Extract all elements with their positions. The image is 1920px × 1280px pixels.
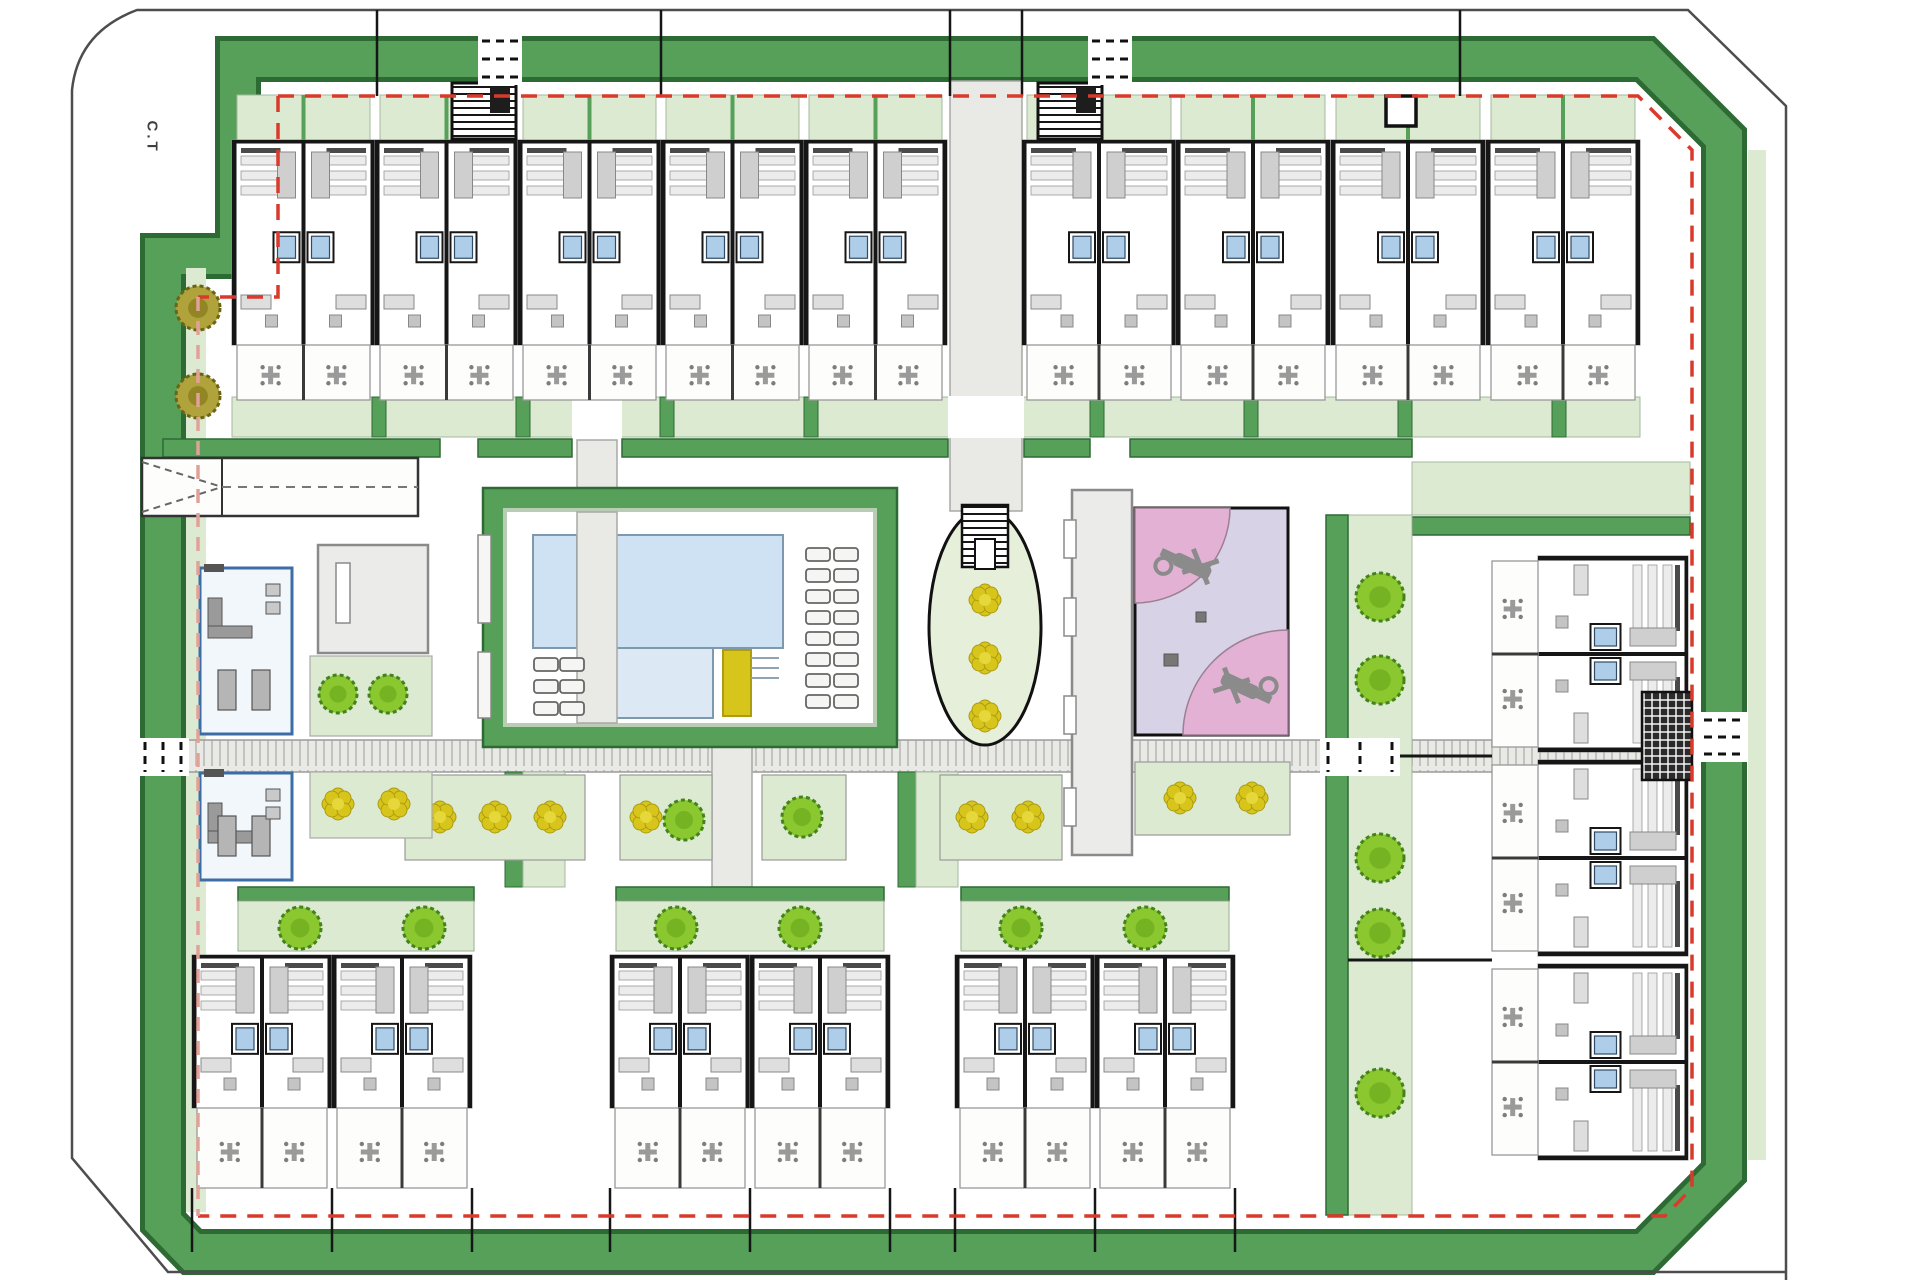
bed-headboard bbox=[1586, 148, 1631, 153]
sofa bbox=[1340, 295, 1370, 309]
door-slot bbox=[1064, 788, 1076, 826]
unit-wall bbox=[445, 140, 449, 345]
bathroom-tile bbox=[828, 1028, 846, 1050]
side-table bbox=[330, 315, 342, 327]
planter-flower bbox=[322, 788, 354, 820]
unit-wall bbox=[661, 140, 666, 345]
bed bbox=[759, 986, 797, 995]
closet bbox=[376, 967, 394, 1013]
side-table bbox=[409, 315, 421, 327]
unit-wall bbox=[1172, 140, 1177, 345]
tree bbox=[782, 797, 822, 837]
side-table bbox=[266, 315, 278, 327]
sun-lounger bbox=[534, 702, 558, 715]
closet bbox=[828, 967, 846, 1013]
unit-wall bbox=[1538, 964, 1688, 969]
pool-enclosure bbox=[478, 488, 897, 747]
closet bbox=[884, 152, 902, 198]
planter-strip bbox=[961, 887, 1229, 951]
bed bbox=[1104, 1001, 1142, 1010]
tree bbox=[1356, 656, 1404, 704]
sofa bbox=[813, 295, 843, 309]
terrace-table bbox=[326, 365, 346, 385]
sun-lounger bbox=[834, 695, 858, 708]
sofa bbox=[1104, 1058, 1134, 1072]
unit-wall bbox=[1331, 140, 1336, 345]
bin-room-dark bbox=[490, 87, 510, 113]
side-table bbox=[473, 315, 485, 327]
service-building bbox=[318, 545, 428, 653]
bed bbox=[1122, 156, 1167, 165]
bed-headboard bbox=[1122, 148, 1167, 153]
garden-separator bbox=[1552, 397, 1566, 437]
side-table bbox=[288, 1078, 300, 1090]
plaza-green-band bbox=[478, 439, 572, 457]
club-desk bbox=[208, 626, 252, 638]
bed bbox=[1663, 881, 1672, 947]
bed bbox=[1586, 186, 1631, 195]
bathroom-tile bbox=[850, 236, 868, 258]
terrace-table bbox=[284, 1142, 304, 1162]
unit-wall bbox=[1091, 955, 1096, 1108]
terrace-divider bbox=[588, 345, 591, 400]
bed-headboard bbox=[1675, 881, 1680, 947]
side-table bbox=[1525, 315, 1537, 327]
unit-wall bbox=[1538, 556, 1688, 561]
tree bbox=[369, 675, 407, 713]
bed bbox=[1633, 973, 1642, 1039]
patio-divider bbox=[445, 95, 449, 140]
closet bbox=[1073, 152, 1091, 198]
bathroom-tile bbox=[1416, 236, 1434, 258]
unit-wall bbox=[375, 140, 380, 345]
bed bbox=[527, 171, 567, 180]
sun-lounger bbox=[834, 611, 858, 624]
bed-headboard bbox=[619, 963, 657, 968]
closet bbox=[707, 152, 725, 198]
bathroom-tile bbox=[410, 1028, 428, 1050]
sofa bbox=[759, 1058, 789, 1072]
sofa bbox=[1601, 295, 1631, 309]
patio-divider bbox=[302, 95, 306, 140]
side-table bbox=[1434, 315, 1446, 327]
closet bbox=[564, 152, 582, 198]
parking-ramp bbox=[142, 458, 418, 516]
bathroom-tile bbox=[1595, 1070, 1617, 1088]
garden-separator bbox=[1090, 397, 1104, 437]
terrace-divider bbox=[261, 1108, 264, 1188]
bed bbox=[201, 1001, 239, 1010]
bed bbox=[964, 971, 1002, 980]
sofa bbox=[1574, 973, 1588, 1003]
sun-lounger bbox=[834, 590, 858, 603]
sofa bbox=[527, 295, 557, 309]
bed bbox=[619, 986, 657, 995]
terrace-table bbox=[1517, 365, 1537, 385]
planter-band bbox=[961, 887, 1229, 901]
side-table bbox=[987, 1078, 999, 1090]
bed bbox=[670, 171, 710, 180]
bathroom-tile bbox=[999, 1028, 1017, 1050]
apartment-unit-pair bbox=[610, 955, 750, 1188]
unit-wall bbox=[657, 140, 662, 345]
terrace-divider bbox=[1098, 345, 1101, 400]
unit-wall bbox=[750, 955, 755, 1108]
bed bbox=[327, 156, 367, 165]
bed-headboard bbox=[1675, 973, 1680, 1039]
closet bbox=[278, 152, 296, 198]
side-table bbox=[1556, 680, 1568, 692]
terrace-table bbox=[1503, 893, 1523, 913]
terrace-divider bbox=[1562, 345, 1565, 400]
bed bbox=[425, 971, 463, 980]
patio-divider bbox=[731, 95, 735, 140]
unit-wall bbox=[514, 140, 519, 345]
sofa bbox=[1574, 713, 1588, 743]
terrace-divider bbox=[401, 1108, 404, 1188]
unit-wall bbox=[1561, 140, 1565, 345]
unit-wall bbox=[746, 955, 751, 1108]
unit-wall bbox=[192, 955, 197, 1108]
bathroom-tile bbox=[1073, 236, 1091, 258]
bed-headboard bbox=[613, 148, 653, 153]
side-table bbox=[1191, 1078, 1203, 1090]
unit-wall bbox=[1176, 140, 1181, 345]
bed bbox=[1122, 171, 1167, 180]
closet bbox=[1630, 832, 1676, 850]
door-slot bbox=[1064, 598, 1076, 636]
bed bbox=[527, 156, 567, 165]
bed bbox=[1633, 881, 1642, 947]
bathroom-tile bbox=[1595, 1036, 1617, 1054]
unit-wall bbox=[1538, 652, 1688, 656]
flower-strip bbox=[940, 775, 1062, 860]
green-band-lining bbox=[1748, 150, 1766, 1160]
bed bbox=[1276, 156, 1321, 165]
bottom-apartment-cluster bbox=[192, 955, 472, 1188]
bathroom-tile bbox=[376, 1028, 394, 1050]
bed bbox=[470, 171, 510, 180]
terrace-table bbox=[1053, 365, 1073, 385]
side-table bbox=[1061, 315, 1073, 327]
terrace-table bbox=[1362, 365, 1382, 385]
closet bbox=[421, 152, 439, 198]
sofa bbox=[1031, 295, 1061, 309]
terrace-table bbox=[220, 1142, 240, 1162]
closet bbox=[1416, 152, 1434, 198]
patio-divider bbox=[1251, 95, 1255, 140]
tree bbox=[319, 675, 357, 713]
sun-lounger bbox=[834, 632, 858, 645]
tree bbox=[664, 800, 704, 840]
bathroom-tile bbox=[688, 1028, 706, 1050]
bed bbox=[1276, 186, 1321, 195]
apartment-unit-pair bbox=[518, 95, 661, 400]
sofa bbox=[1574, 1121, 1588, 1151]
sofa bbox=[1196, 1058, 1226, 1072]
garden-island bbox=[929, 505, 1041, 745]
service-building bbox=[1072, 490, 1132, 855]
sun-lounger bbox=[806, 632, 830, 645]
unit-wall bbox=[1251, 140, 1255, 345]
bed bbox=[341, 986, 379, 995]
terrace-table bbox=[1433, 365, 1453, 385]
sofa bbox=[964, 1058, 994, 1072]
bed bbox=[1663, 973, 1672, 1039]
top-apartment-block bbox=[1022, 95, 1640, 400]
unit-wall bbox=[800, 140, 805, 345]
unit-wall bbox=[328, 955, 333, 1108]
tree bbox=[1356, 834, 1404, 882]
plaza-green-band bbox=[1024, 439, 1090, 457]
closet bbox=[270, 967, 288, 1013]
bed bbox=[843, 986, 881, 995]
club-unit bbox=[266, 602, 280, 614]
bed-headboard bbox=[1048, 963, 1086, 968]
side-table bbox=[695, 315, 707, 327]
bed bbox=[1188, 971, 1226, 980]
unit-wall bbox=[818, 955, 822, 1108]
planter-flower bbox=[969, 642, 1001, 674]
apartment-unit-pair bbox=[804, 95, 947, 400]
closet bbox=[1630, 1070, 1676, 1088]
tree bbox=[1356, 909, 1404, 957]
terrace-divider bbox=[1492, 1061, 1538, 1064]
bathroom-tile bbox=[741, 236, 759, 258]
bed-headboard bbox=[703, 963, 741, 968]
play-equipment-small bbox=[1164, 654, 1178, 666]
bed bbox=[964, 1001, 1002, 1010]
terrace-table bbox=[832, 365, 852, 385]
bed-headboard bbox=[1276, 148, 1321, 153]
unit-wall bbox=[400, 955, 404, 1108]
bed bbox=[759, 1001, 797, 1010]
closet bbox=[1537, 152, 1555, 198]
tree-strip-band bbox=[1326, 515, 1348, 1215]
terrace-table bbox=[1187, 1142, 1207, 1162]
unit-wall bbox=[1097, 140, 1101, 345]
bed bbox=[756, 156, 796, 165]
bed bbox=[1188, 986, 1226, 995]
bed bbox=[384, 186, 424, 195]
bathroom-tile bbox=[236, 1028, 254, 1050]
sofa bbox=[851, 1058, 881, 1072]
terrace-divider bbox=[445, 345, 448, 400]
terrace-divider bbox=[302, 345, 305, 400]
side-table bbox=[759, 315, 771, 327]
terrace-divider bbox=[1024, 1108, 1027, 1188]
bin-room-dark bbox=[1076, 87, 1096, 113]
unit-wall bbox=[886, 955, 891, 1108]
sun-lounger bbox=[534, 680, 558, 693]
apartment-unit-pair bbox=[375, 95, 518, 400]
planter-flower bbox=[1164, 782, 1196, 814]
side-table bbox=[1556, 884, 1568, 896]
bed bbox=[384, 171, 424, 180]
tree bbox=[655, 907, 697, 949]
sofa bbox=[201, 1058, 231, 1072]
garden-separator bbox=[1398, 397, 1412, 437]
bin-store-room bbox=[1038, 83, 1102, 139]
tree bbox=[1000, 907, 1042, 949]
closet bbox=[688, 967, 706, 1013]
bed bbox=[1586, 156, 1631, 165]
right-cluster-band bbox=[1412, 517, 1690, 535]
bathroom-tile bbox=[707, 236, 725, 258]
sofa bbox=[1185, 295, 1215, 309]
unit-wall bbox=[955, 955, 960, 1108]
garden-separator bbox=[804, 397, 818, 437]
side-table bbox=[1556, 820, 1568, 832]
bed bbox=[1495, 186, 1540, 195]
pool-steps bbox=[723, 650, 751, 716]
side-table bbox=[706, 1078, 718, 1090]
bed bbox=[1648, 973, 1657, 1039]
central-corridor-walkway bbox=[950, 81, 1022, 511]
closet bbox=[1630, 866, 1676, 884]
terrace-table bbox=[778, 1142, 798, 1162]
bathroom-tile bbox=[421, 236, 439, 258]
bed-headboard bbox=[1185, 148, 1230, 153]
closet bbox=[236, 967, 254, 1013]
closet bbox=[1173, 967, 1191, 1013]
bed-headboard bbox=[756, 148, 796, 153]
ct-transformer-label: C.T bbox=[144, 121, 161, 141]
unit-wall bbox=[518, 140, 523, 345]
apartment-unit-pair bbox=[661, 95, 804, 400]
terrace-table bbox=[702, 1142, 722, 1162]
door-slot bbox=[1064, 696, 1076, 734]
sofa bbox=[433, 1058, 463, 1072]
unit-wall bbox=[302, 140, 306, 345]
sofa bbox=[1574, 565, 1588, 595]
bed bbox=[899, 171, 939, 180]
bathroom-tile bbox=[270, 1028, 288, 1050]
bed bbox=[1431, 156, 1476, 165]
terrace-table bbox=[469, 365, 489, 385]
side-table bbox=[902, 315, 914, 327]
sofa bbox=[1056, 1058, 1086, 1072]
terrace-table bbox=[689, 365, 709, 385]
garden-terrace bbox=[310, 772, 432, 838]
unit-wall bbox=[1538, 856, 1688, 860]
terrace-table bbox=[1503, 599, 1523, 619]
sun-lounger bbox=[834, 674, 858, 687]
closet bbox=[1630, 662, 1676, 680]
bed bbox=[1185, 186, 1230, 195]
bathroom-tile bbox=[1261, 236, 1279, 258]
sofa bbox=[908, 295, 938, 309]
apartment-unit-pair bbox=[1331, 95, 1485, 400]
sofa bbox=[1574, 917, 1588, 947]
flower-strip bbox=[620, 775, 712, 860]
side-table bbox=[1556, 1088, 1568, 1100]
bed bbox=[384, 156, 424, 165]
island-stair-landing bbox=[975, 539, 995, 569]
bed bbox=[1185, 156, 1230, 165]
terrace-divider bbox=[874, 345, 877, 400]
flower-strip bbox=[1135, 762, 1290, 835]
sun-lounger bbox=[806, 674, 830, 687]
site-plan-canvas: C.T bbox=[0, 0, 1920, 1280]
terrace-divider bbox=[1492, 857, 1538, 860]
unit-wall bbox=[610, 955, 615, 1108]
sofa bbox=[341, 1058, 371, 1072]
unit-wall bbox=[1538, 1156, 1688, 1161]
closet bbox=[654, 967, 672, 1013]
closet bbox=[794, 967, 812, 1013]
terrace-table bbox=[638, 1142, 658, 1162]
side-table bbox=[1556, 616, 1568, 628]
sofa bbox=[1495, 295, 1525, 309]
terrace-table bbox=[898, 365, 918, 385]
bed bbox=[1048, 971, 1086, 980]
unit-wall bbox=[260, 955, 264, 1108]
unit-wall bbox=[1163, 955, 1167, 1108]
tree bbox=[1124, 907, 1166, 949]
bed-headboard bbox=[384, 148, 424, 153]
sofa bbox=[1574, 769, 1588, 799]
bed bbox=[670, 186, 710, 195]
plaza-green-band bbox=[622, 439, 948, 457]
terrace-table bbox=[1503, 689, 1523, 709]
bathroom-tile bbox=[455, 236, 473, 258]
terrace-divider bbox=[1492, 653, 1538, 656]
bed-headboard bbox=[1675, 1085, 1680, 1151]
bed-headboard bbox=[899, 148, 939, 153]
side-table bbox=[1051, 1078, 1063, 1090]
bed-headboard bbox=[1031, 148, 1076, 153]
bed bbox=[756, 186, 796, 195]
vertical-green-strip bbox=[898, 772, 916, 887]
bottom-apartment-cluster bbox=[610, 955, 890, 1188]
bed bbox=[425, 986, 463, 995]
masterplan-svg bbox=[0, 0, 1920, 1280]
side-table bbox=[1589, 315, 1601, 327]
bed bbox=[1122, 186, 1167, 195]
closet bbox=[598, 152, 616, 198]
bed bbox=[1104, 986, 1142, 995]
side-table bbox=[1125, 315, 1137, 327]
pool-water-arm bbox=[533, 535, 577, 648]
bathroom-tile bbox=[794, 1028, 812, 1050]
door-slot bbox=[336, 563, 350, 623]
play-equipment-small bbox=[1196, 612, 1206, 622]
unit-wall bbox=[1406, 140, 1410, 345]
plaza-green-band bbox=[1130, 439, 1412, 457]
bathroom-tile bbox=[1173, 1028, 1191, 1050]
bed bbox=[1340, 156, 1385, 165]
terrace-table bbox=[403, 365, 423, 385]
closet bbox=[312, 152, 330, 198]
pool-water-main bbox=[613, 535, 783, 648]
side-table bbox=[782, 1078, 794, 1090]
closet bbox=[1139, 967, 1157, 1013]
tree bbox=[1356, 573, 1404, 621]
garden-separator bbox=[660, 397, 674, 437]
unit-wall bbox=[468, 955, 473, 1108]
terrace-table bbox=[424, 1142, 444, 1162]
bed-headboard bbox=[341, 963, 379, 968]
bed-headboard bbox=[1675, 565, 1680, 631]
bed-headboard bbox=[201, 963, 239, 968]
bed-headboard bbox=[1495, 148, 1540, 153]
tree bbox=[403, 907, 445, 949]
closet bbox=[1382, 152, 1400, 198]
side-table bbox=[846, 1078, 858, 1090]
bed-headboard bbox=[285, 963, 323, 968]
sun-lounger bbox=[560, 658, 584, 671]
